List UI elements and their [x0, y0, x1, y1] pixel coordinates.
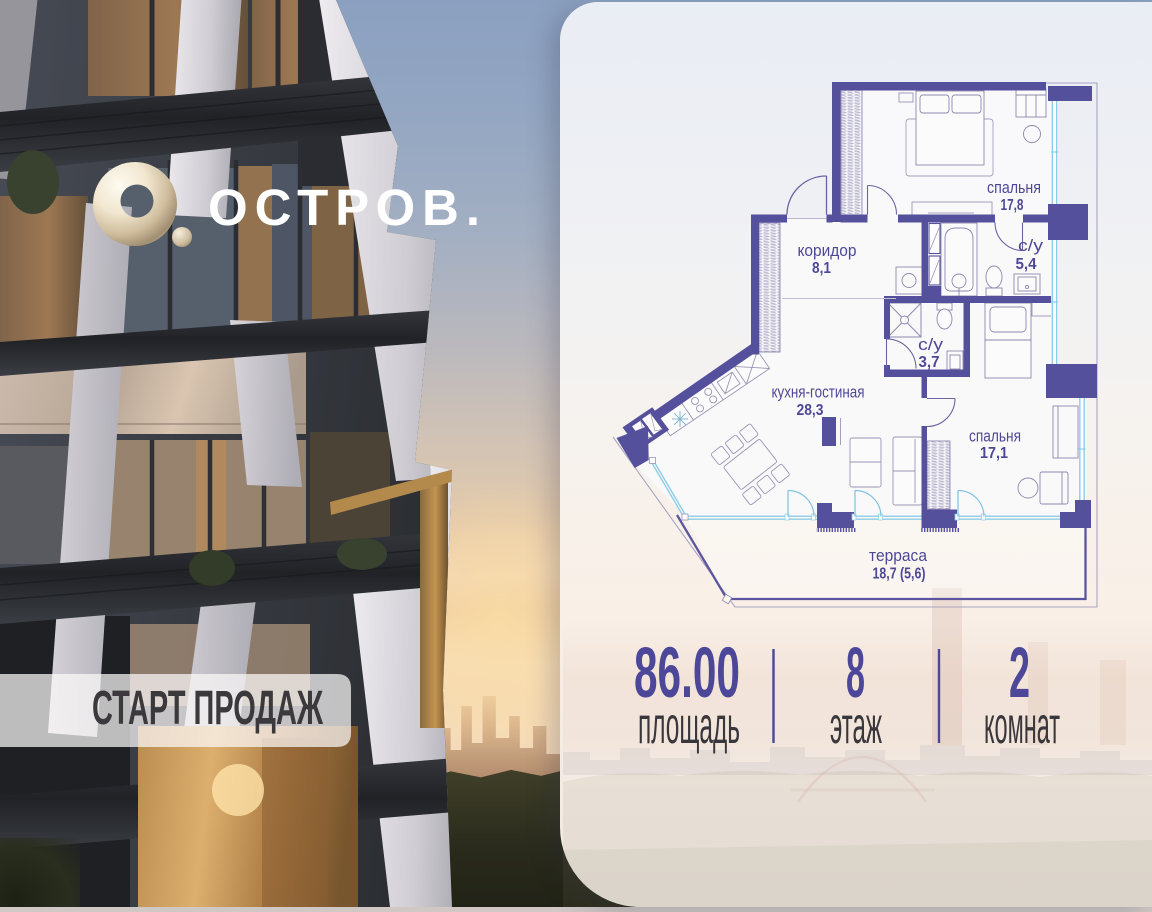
- svg-text:17,8: 17,8: [1001, 197, 1024, 214]
- svg-text:спальня: спальня: [969, 428, 1021, 446]
- svg-text:28,3: 28,3: [797, 402, 824, 419]
- svg-text:3,7: 3,7: [919, 354, 940, 371]
- svg-text:ОСТРОВ.: ОСТРОВ.: [208, 179, 480, 236]
- svg-text:18,7 (5,6): 18,7 (5,6): [873, 566, 926, 583]
- svg-text:17,1: 17,1: [980, 445, 1008, 462]
- svg-text:с/у: с/у: [918, 336, 944, 354]
- svg-text:кухня-гостиная: кухня-гостиная: [772, 384, 865, 402]
- svg-text:площадь: площадь: [638, 697, 740, 755]
- svg-text:8,1: 8,1: [812, 260, 831, 277]
- svg-text:спальня: спальня: [987, 179, 1041, 197]
- svg-text:этаж: этаж: [830, 697, 882, 755]
- svg-text:5,4: 5,4: [1016, 256, 1037, 273]
- svg-text:комнат: комнат: [984, 697, 1060, 755]
- svg-text:с/у: с/у: [1018, 237, 1044, 255]
- svg-text:СТАРТ ПРОДАЖ: СТАРТ ПРОДАЖ: [92, 682, 323, 735]
- svg-text:терраса: терраса: [869, 547, 928, 565]
- svg-text:коридор: коридор: [798, 242, 857, 260]
